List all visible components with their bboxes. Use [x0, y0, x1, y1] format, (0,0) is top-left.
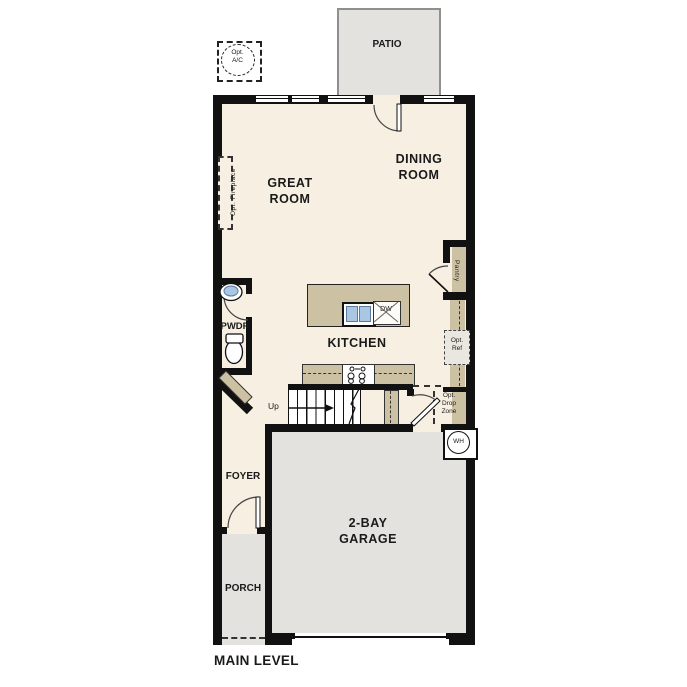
garage-label: 2-BAY GARAGE: [318, 516, 418, 547]
great-room-label: GREAT ROOM: [240, 176, 340, 207]
garage-door-line: [292, 636, 449, 638]
pwdr-wall-right-upper: [246, 278, 252, 294]
dining-room-label: DINING ROOM: [379, 152, 459, 183]
opt-ac-label: Opt. A/C: [217, 49, 258, 65]
dishwasher-label-text: DW: [379, 306, 393, 313]
porch-edge-dash: [222, 637, 265, 639]
patio-slab: [337, 8, 441, 98]
garage-entry-stub: [407, 389, 414, 396]
garage-north-wall-left: [265, 424, 413, 432]
sink-basin-right: [359, 306, 371, 322]
foyer-wall-right-stub: [257, 527, 272, 534]
stairs-up-label: Up: [268, 401, 279, 412]
porch-label: PORCH: [221, 583, 265, 596]
pwdr-wall-bottom: [222, 368, 246, 375]
window: [255, 96, 289, 102]
staircase: [288, 389, 361, 426]
opt-drop-zone-label: Opt. Drop Zone: [431, 392, 467, 416]
window: [423, 96, 455, 102]
pantry-label: Pantry: [453, 250, 460, 292]
garage-door-notch-right: [446, 633, 451, 639]
stair-half-wall: [384, 390, 399, 426]
window: [327, 96, 366, 102]
half-wall-dash: [390, 391, 391, 423]
exterior-wall-right: [466, 95, 475, 645]
garage-south-wall-left: [265, 633, 292, 645]
window: [291, 96, 320, 102]
sink-basin-left: [346, 306, 358, 322]
patio-door-opening: [373, 95, 400, 104]
garage-south-wall-right: [449, 633, 475, 645]
kitchen-label: KITCHEN: [307, 336, 407, 352]
water-heater-label: WH: [447, 438, 470, 446]
foyer-wall-left-stub: [222, 527, 227, 534]
opt-fireplace-label: Opt. Fireplace: [230, 156, 237, 228]
floor-plan: PATIO Opt. A/C Opt. Fireplace PWDR DW KI…: [0, 0, 687, 687]
garage-west-wall: [265, 424, 272, 645]
pwdr-label: PWDR: [216, 321, 254, 333]
dropzone-opening-dash: [413, 385, 441, 387]
garage-door-notch-left: [290, 633, 295, 639]
pantry-wall-bottom: [443, 292, 466, 300]
opt-ref-label: Opt. Ref: [444, 337, 470, 353]
patio-label: PATIO: [337, 39, 437, 52]
foyer-label: FOYER: [222, 471, 264, 484]
pantry-wall-left: [443, 240, 450, 263]
dishwasher-box: [373, 301, 401, 325]
plan-title: MAIN LEVEL: [214, 653, 299, 668]
cooktop: [342, 364, 375, 386]
dishwasher-label: DW: [373, 306, 399, 313]
